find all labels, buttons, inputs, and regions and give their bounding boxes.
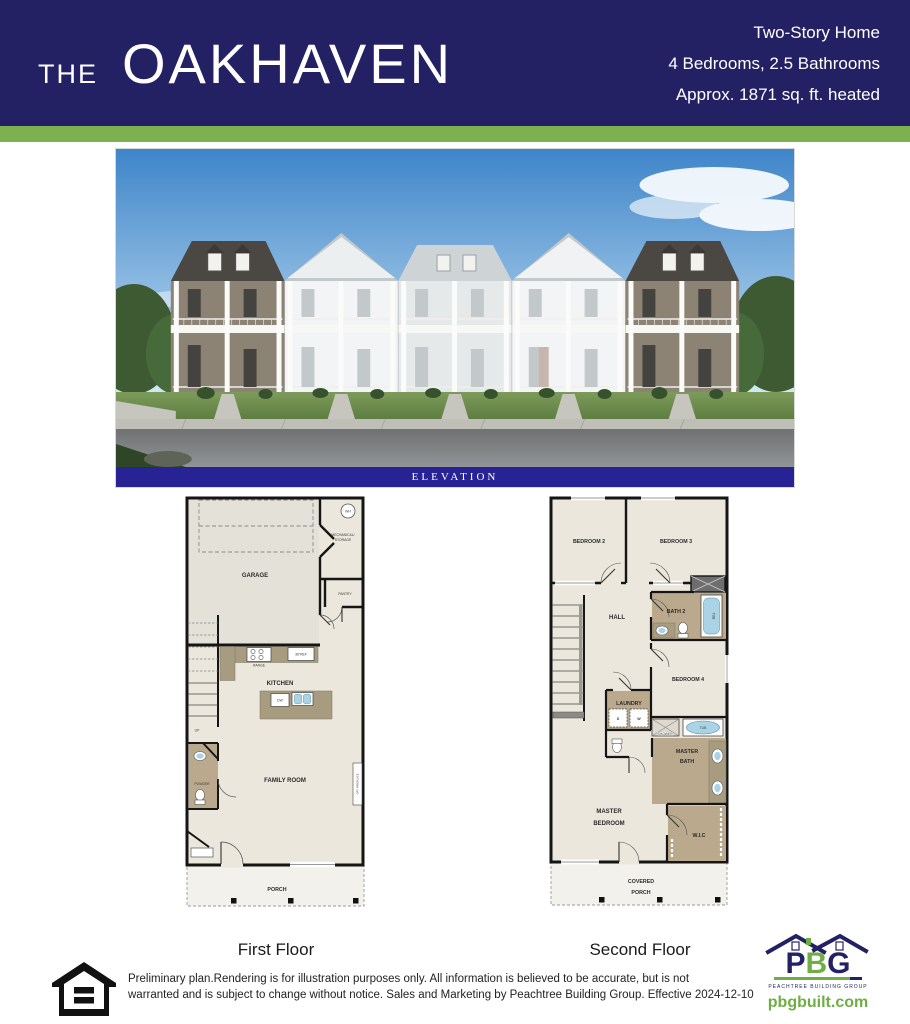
disclaimer-line1: Preliminary plan.Rendering is for illust… [128,972,756,988]
plan-title-prefix: THE [38,59,98,90]
svg-text:PBG: PBG [785,947,850,980]
pbg-logo: PBG PEACHTREE BUILDING GROUP [762,930,874,992]
pbg-website: pbgbuilt.com [758,994,878,1012]
pbg-letter-b: B [806,947,828,980]
disclaimer-text: Preliminary plan.Rendering is for illust… [128,972,756,1003]
elevation-rendering: ELEVATION [115,148,795,488]
label-storage: STORAGE [335,538,352,542]
label-porch: PORCH [267,887,286,893]
label-bedroom3: BEDROOM 3 [660,539,692,545]
pbg-letter-p: P [785,947,805,980]
disclaimer-line2: warranted and is subject to change witho… [128,988,756,1004]
label-bedroom4: BEDROOM 4 [672,677,704,683]
plan-title-name: OAKHAVEN [122,31,453,96]
first-floor-drawing: WH MECHANICAL/ STORAGE PANTRY GARAGE RAN… [185,495,367,915]
spec-sqft: Approx. 1871 sq. ft. heated [668,79,880,110]
pbg-logo-drawing: PBG PEACHTREE BUILDING GROUP [762,930,874,992]
label-range: RANGE [253,664,266,668]
label-opt-fireplace: OPT. FIREPLACE [356,773,360,794]
first-floor-caption: First Floor [185,940,367,960]
plan-title: THE OAKHAVEN [0,31,453,96]
spec-beds-baths: 4 Bedrooms, 2.5 Bathrooms [668,48,880,79]
label-master-tub: TUB [700,726,708,730]
pbg-letter-g: G [827,947,850,980]
flyer-page: THE OAKHAVEN Two-Story Home 4 Bedrooms, … [0,0,910,1024]
label-master-bed2: BEDROOM [593,821,624,827]
second-floor-drawing: BEDROOM 2 BEDROOM 3 HALL [549,495,731,915]
label-family-room: FAMILY ROOM [264,778,306,784]
pbg-tagline: PEACHTREE BUILDING GROUP [768,984,867,990]
label-water-heater: WH [345,509,351,513]
label-covered-porch2: PORCH [631,890,650,896]
spec-story: Two-Story Home [668,17,880,48]
label-pantry: PANTRY [338,592,352,596]
accent-stripe [0,126,910,142]
label-stairs-up: UP [195,729,200,733]
first-floor-plan: WH MECHANICAL/ STORAGE PANTRY GARAGE RAN… [185,495,367,915]
label-master-bath2: BATH [680,759,694,765]
plan-specs: Two-Story Home 4 Bedrooms, 2.5 Bathrooms… [668,17,910,110]
elevation-caption-text: ELEVATION [412,471,499,483]
label-bedroom2: BEDROOM 2 [573,539,605,545]
label-master-bed1: MASTER [596,809,622,815]
label-covered-porch1: COVERED [628,879,654,885]
equal-housing-icon [52,962,116,1016]
label-master-bath1: MASTER [676,749,699,755]
second-floor-plan: BEDROOM 2 BEDROOM 3 HALL [549,495,731,915]
label-refrigerator: 36"REF [295,653,307,657]
townhome-rendering-image [116,149,794,467]
label-kitchen: KITCHEN [267,681,294,687]
label-shower: SHOWER [657,732,673,736]
label-dishwasher: DW [277,699,283,703]
header-banner: THE OAKHAVEN Two-Story Home 4 Bedrooms, … [0,0,910,126]
second-floor-caption: Second Floor [549,940,731,960]
label-powder: POWDER [194,782,210,786]
label-laundry: LAUNDRY [616,701,642,707]
label-hall: HALL [609,615,625,621]
label-bath2-tub: TUB [712,613,716,621]
equal-housing-logo-drawing [52,962,116,1016]
elevation-caption-bar: ELEVATION [116,467,794,487]
label-mechanical: MECHANICAL/ [331,533,354,537]
label-dryer: D [617,717,620,721]
label-bath2: BATH 2 [667,609,686,615]
label-washer: W [637,717,641,721]
label-garage: GARAGE [242,573,268,579]
label-wic: W.I.C [693,833,706,839]
